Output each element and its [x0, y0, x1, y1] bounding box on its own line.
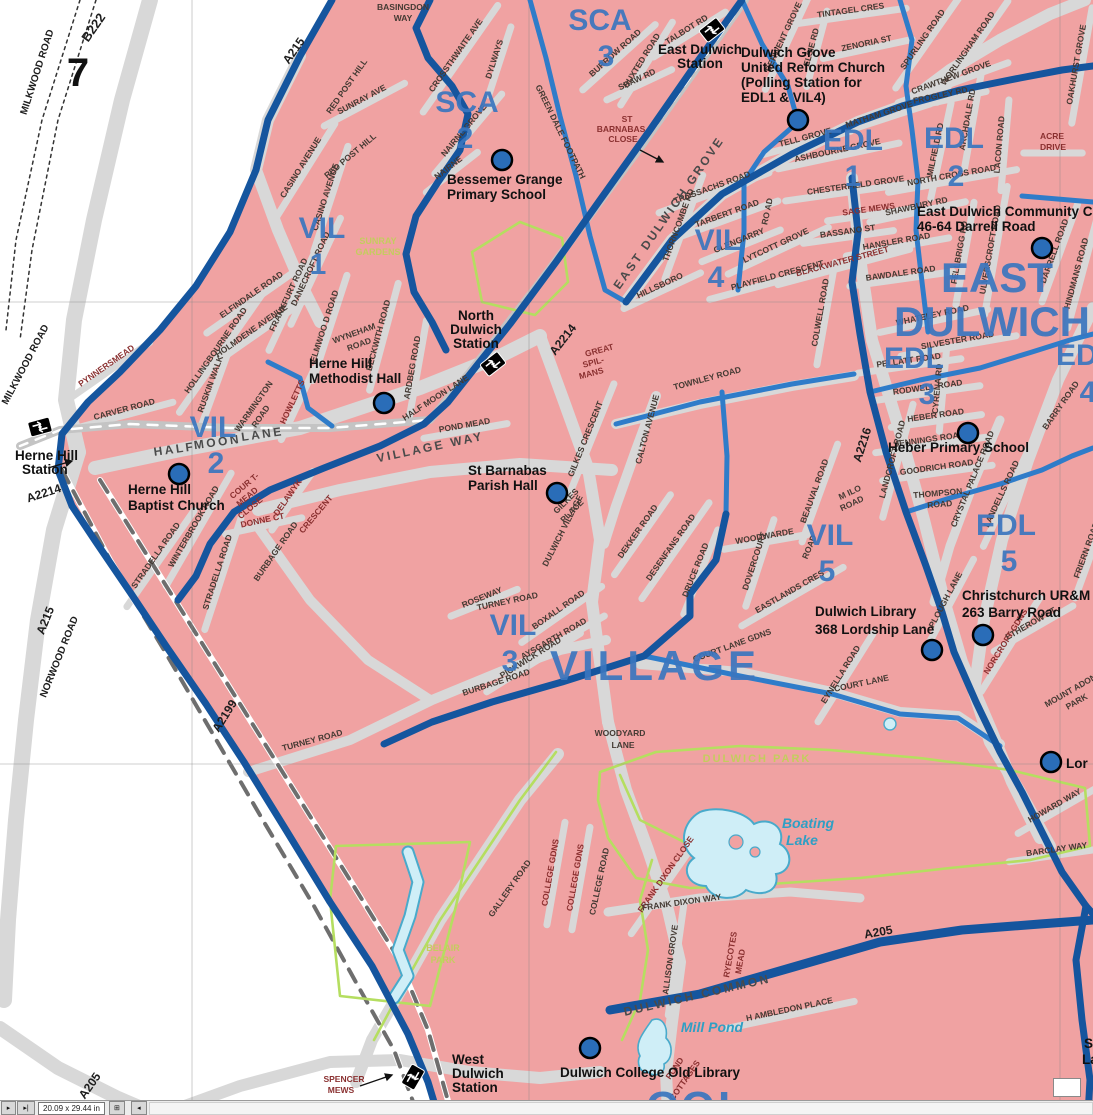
ward-label: VIL — [299, 212, 346, 245]
ward-label: 3 — [502, 645, 519, 678]
rail-station-label: Dulwich — [452, 1066, 504, 1081]
rail-station-label: West — [452, 1052, 485, 1067]
polling-station-bessemer-grange-primary-school[interactable] — [492, 150, 512, 170]
rail-station-label: Herne Hill — [15, 448, 78, 463]
polling-station-dulwich-college-old-library[interactable] — [580, 1038, 600, 1058]
polling-station-label: Dulwich College Old Library — [560, 1065, 741, 1080]
park-label: PARK — [431, 955, 456, 965]
map-canvas[interactable]: BASINGDONWAYCROSSTHWAITE AVEDYLWAYSSUNRA… — [0, 0, 1093, 1115]
polling-station-label: Herne Hill — [128, 482, 191, 497]
polling-station-label: (Polling Station for — [741, 75, 862, 90]
polling-station-label: 368 Lordship Lane — [815, 622, 935, 637]
rail-station-label: Station — [677, 56, 723, 71]
ward-label: SCA — [568, 4, 631, 37]
ward-label: EAST — [941, 254, 1053, 301]
polling-station-marker[interactable] — [547, 483, 567, 503]
street-label: DRIVE — [1040, 142, 1066, 152]
park-label: DULWICH PARK — [703, 753, 812, 765]
ward-label: 4 — [1080, 376, 1093, 409]
polling-station-marker[interactable] — [374, 393, 394, 413]
street-label: MEWS — [328, 1085, 355, 1095]
polling-station-label: St Barnabas — [468, 463, 547, 478]
polling-station-herne-hill-baptist-church[interactable] — [169, 464, 189, 484]
polling-station-label: Primary School — [447, 187, 546, 202]
park-label: GARDENS — [355, 247, 400, 257]
grid-view-button[interactable]: ⊞ — [109, 1101, 125, 1115]
ward-label: VIL — [807, 519, 854, 552]
ward-label: VIL — [695, 224, 742, 257]
polling-station-label: Dulwich Grove — [741, 45, 836, 60]
polling-station-label: Lor — [1066, 756, 1088, 771]
polling-station-lordship-lane-clipped[interactable] — [1041, 752, 1061, 772]
street-label: BASINGDON — [377, 2, 429, 12]
polling-station-dulwich-grove-united-reform-church[interactable] — [788, 110, 808, 130]
scrollbar-corner-box[interactable] — [1053, 1078, 1081, 1097]
ward-label: EDL — [924, 122, 984, 155]
ward-label: EDL — [823, 124, 883, 157]
hscroll-track[interactable] — [149, 1102, 1093, 1115]
polling-station-marker[interactable] — [973, 625, 993, 645]
polling-station-label: Herne Hill — [309, 356, 372, 371]
ward-label: VILLAGE — [550, 642, 760, 689]
ward-label: 3 — [598, 40, 615, 73]
map-viewport[interactable]: BASINGDONWAYCROSSTHWAITE AVEDYLWAYSSUNRA… — [0, 0, 1093, 1115]
park-label: BELAIR — [426, 943, 460, 953]
polling-station-label: 46-64 Darrell Road — [917, 219, 1036, 234]
park-label: SUNRAY — [359, 236, 396, 246]
ward-label: 3 — [919, 378, 936, 411]
bottom-status-bar: ▸ ▸| 20.09 x 29.44 in ⊞ ◂ — [0, 1100, 1093, 1115]
ward-label: SCA — [435, 86, 498, 119]
polling-station-marker[interactable] — [1032, 238, 1052, 258]
ward-label: EDL — [976, 509, 1036, 542]
polling-station-marker[interactable] — [169, 464, 189, 484]
ward-label: 2 — [208, 447, 225, 480]
ward-label: 4 — [708, 261, 725, 294]
street-label: ST — [622, 114, 634, 124]
ward-label: 2 — [948, 160, 965, 193]
polling-station-label: Baptist Church — [128, 498, 225, 513]
street-label: WOODYARD — [595, 728, 646, 738]
water-label: Lake — [786, 832, 818, 848]
polling-station-east-dulwich-community-centre[interactable] — [1032, 238, 1052, 258]
water-label: Boating — [782, 815, 835, 831]
ward-label: EDL — [884, 342, 944, 375]
clipped-label-fragment: La — [1082, 1052, 1093, 1067]
street-label: CLOSE — [608, 134, 638, 144]
polling-station-label: 263 Barry Road — [962, 605, 1061, 620]
ward-label: 1 — [310, 248, 327, 281]
ward-label: VIL — [190, 411, 237, 444]
page-size-box: 20.09 x 29.44 in — [38, 1102, 105, 1115]
street-label: ACRE — [1040, 131, 1064, 141]
polling-station-herne-hill-methodist-hall[interactable] — [374, 393, 394, 413]
polling-station-marker[interactable] — [492, 150, 512, 170]
polling-station-marker[interactable] — [580, 1038, 600, 1058]
polling-station-dulwich-library[interactable] — [922, 640, 942, 660]
polling-station-label: United Reform Church — [741, 60, 885, 75]
ward-label: DULWICH — [894, 298, 1090, 345]
street-label: SPENCER — [323, 1074, 364, 1084]
polling-station-label: Christchurch UR&M — [962, 588, 1090, 603]
page-size-text: 20.09 x 29.44 in — [43, 1104, 100, 1113]
water-label: Mill Pond — [681, 1019, 744, 1035]
polling-station-marker[interactable] — [788, 110, 808, 130]
rail-station-label: East Dulwich — [658, 42, 742, 57]
clipped-label-fragment: S — [1084, 1036, 1093, 1051]
map-sheet-number: 7 — [67, 51, 89, 95]
nav-next-page-button[interactable]: ▸ — [1, 1101, 16, 1115]
rail-station-label: Dulwich — [450, 322, 502, 337]
street-label: LANE — [611, 740, 634, 750]
polling-station-st-barnabas-parish-hall[interactable] — [547, 483, 567, 503]
rail-station-label: Station — [453, 336, 499, 351]
ward-label: VIL — [490, 609, 537, 642]
hscroll-left-arrow[interactable]: ◂ — [131, 1101, 147, 1115]
polling-station-label: EDL1 & VIL4) — [741, 90, 826, 105]
polling-station-label: Methodist Hall — [309, 371, 401, 386]
ward-label: 5 — [1001, 545, 1018, 578]
ward-label: 2 — [457, 122, 474, 155]
polling-station-label: Dulwich Library — [815, 604, 917, 619]
street-label: BARNABAS — [597, 124, 646, 134]
street-label: WAY — [394, 13, 413, 23]
ward-label: 1 — [845, 160, 862, 193]
nav-last-page-button[interactable]: ▸| — [17, 1101, 35, 1115]
polling-station-christchurch-urm[interactable] — [973, 625, 993, 645]
polling-station-label: East Dulwich Community C — [917, 204, 1093, 219]
polling-station-marker[interactable] — [922, 640, 942, 660]
rail-station-label: North — [458, 308, 494, 323]
polling-station-label: Heber Primary School — [888, 440, 1029, 455]
rail-station-label: Station — [22, 462, 68, 477]
polling-station-label: Parish Hall — [468, 478, 538, 493]
polling-station-label: Bessemer Grange — [447, 172, 563, 187]
polling-station-marker[interactable] — [1041, 752, 1061, 772]
ward-label: 5 — [819, 555, 836, 588]
rail-station-label: Station — [452, 1080, 498, 1095]
